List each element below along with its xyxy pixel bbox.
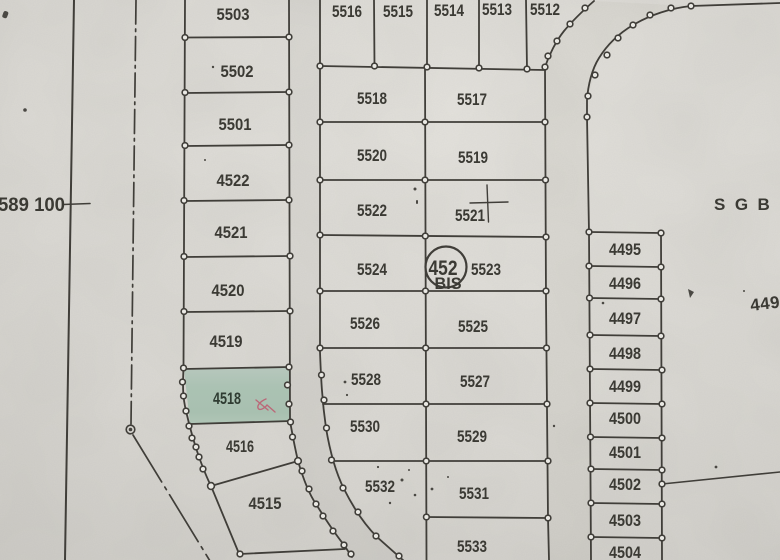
svg-text:5518: 5518 xyxy=(357,89,387,108)
svg-text:5519: 5519 xyxy=(458,148,488,167)
svg-text:4519: 4519 xyxy=(210,332,243,351)
svg-text:4515: 4515 xyxy=(249,494,282,513)
svg-text:4495: 4495 xyxy=(609,240,641,259)
svg-text:4518: 4518 xyxy=(213,389,241,408)
svg-text:5512: 5512 xyxy=(530,0,560,19)
svg-text:4496: 4496 xyxy=(749,291,780,315)
svg-text:5515: 5515 xyxy=(383,2,413,21)
svg-text:4497: 4497 xyxy=(609,309,641,328)
svg-text:5517: 5517 xyxy=(457,90,487,109)
svg-text:5501: 5501 xyxy=(219,115,252,134)
svg-text:5522: 5522 xyxy=(357,201,387,220)
svg-text:5513: 5513 xyxy=(482,0,512,19)
svg-text:SGBC: SGBC xyxy=(714,195,780,214)
svg-text:4499: 4499 xyxy=(609,377,641,396)
svg-text:4502: 4502 xyxy=(609,475,641,494)
svg-text:5531: 5531 xyxy=(459,484,489,503)
svg-text:5502: 5502 xyxy=(221,62,254,81)
svg-text:5503: 5503 xyxy=(217,5,250,24)
svg-text:5523: 5523 xyxy=(471,260,501,279)
svg-text:5516: 5516 xyxy=(332,2,362,21)
svg-text:5521: 5521 xyxy=(455,206,485,225)
svg-text:5530: 5530 xyxy=(350,417,380,436)
svg-text:5520: 5520 xyxy=(357,146,387,165)
svg-text:5527: 5527 xyxy=(460,372,490,391)
svg-text:5524: 5524 xyxy=(357,260,387,279)
svg-text:4516: 4516 xyxy=(226,437,254,456)
svg-text:5526: 5526 xyxy=(350,314,380,333)
svg-text:4496: 4496 xyxy=(609,274,641,293)
svg-text:4501: 4501 xyxy=(609,443,641,462)
svg-text:4498: 4498 xyxy=(609,344,641,363)
svg-text:5525: 5525 xyxy=(458,317,488,336)
svg-text:4520: 4520 xyxy=(212,281,245,300)
svg-text:4521: 4521 xyxy=(215,223,248,242)
svg-text:4500: 4500 xyxy=(609,409,641,428)
svg-text:4522: 4522 xyxy=(217,171,250,190)
svg-text:BIS: BIS xyxy=(435,274,462,293)
svg-text:5514: 5514 xyxy=(434,1,464,20)
svg-text:589 100: 589 100 xyxy=(0,195,65,216)
svg-text:5532: 5532 xyxy=(365,477,395,496)
svg-text:5528: 5528 xyxy=(351,370,381,389)
svg-text:5533: 5533 xyxy=(457,537,487,556)
svg-text:4503: 4503 xyxy=(609,511,641,530)
svg-text:4504: 4504 xyxy=(609,543,641,560)
svg-text:5529: 5529 xyxy=(457,427,487,446)
